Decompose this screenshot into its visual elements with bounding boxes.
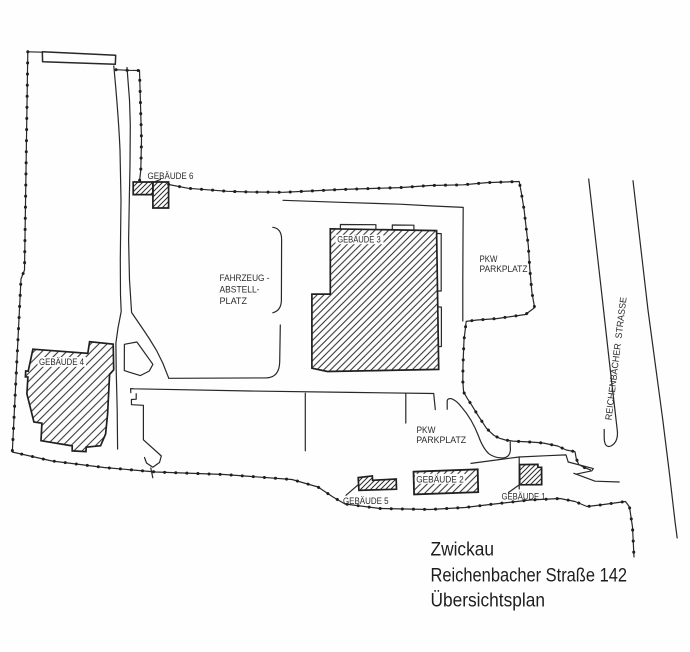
- svg-text:Reichenbacher Straße 142: Reichenbacher Straße 142: [431, 565, 628, 587]
- svg-text:PARKPLATZ: PARKPLATZ: [416, 435, 466, 445]
- svg-text:PKW: PKW: [480, 254, 498, 264]
- svg-text:Übersichtsplan: Übersichtsplan: [431, 589, 546, 611]
- svg-text:PARKPLATZ: PARKPLATZ: [480, 264, 528, 274]
- svg-text:GEBÄUDE 6: GEBÄUDE 6: [148, 171, 194, 181]
- svg-text:ABSTELL-: ABSTELL-: [220, 285, 260, 295]
- svg-text:GEBÄUDE 2: GEBÄUDE 2: [416, 474, 464, 484]
- svg-text:GEBÄUDE 1: GEBÄUDE 1: [502, 492, 546, 502]
- svg-text:GEBÄUDE 5: GEBÄUDE 5: [343, 496, 389, 506]
- svg-text:PLATZ: PLATZ: [220, 296, 248, 306]
- svg-text:FAHRZEUG -: FAHRZEUG -: [220, 273, 270, 283]
- svg-text:REICHENBACHER STRASSE: REICHENBACHER STRASSE: [604, 296, 629, 420]
- svg-text:GEBÄUDE 3: GEBÄUDE 3: [337, 235, 381, 245]
- svg-text:Zwickau: Zwickau: [431, 538, 495, 560]
- svg-text:PKW: PKW: [417, 425, 436, 435]
- svg-text:GEBÄUDE 4: GEBÄUDE 4: [39, 357, 84, 367]
